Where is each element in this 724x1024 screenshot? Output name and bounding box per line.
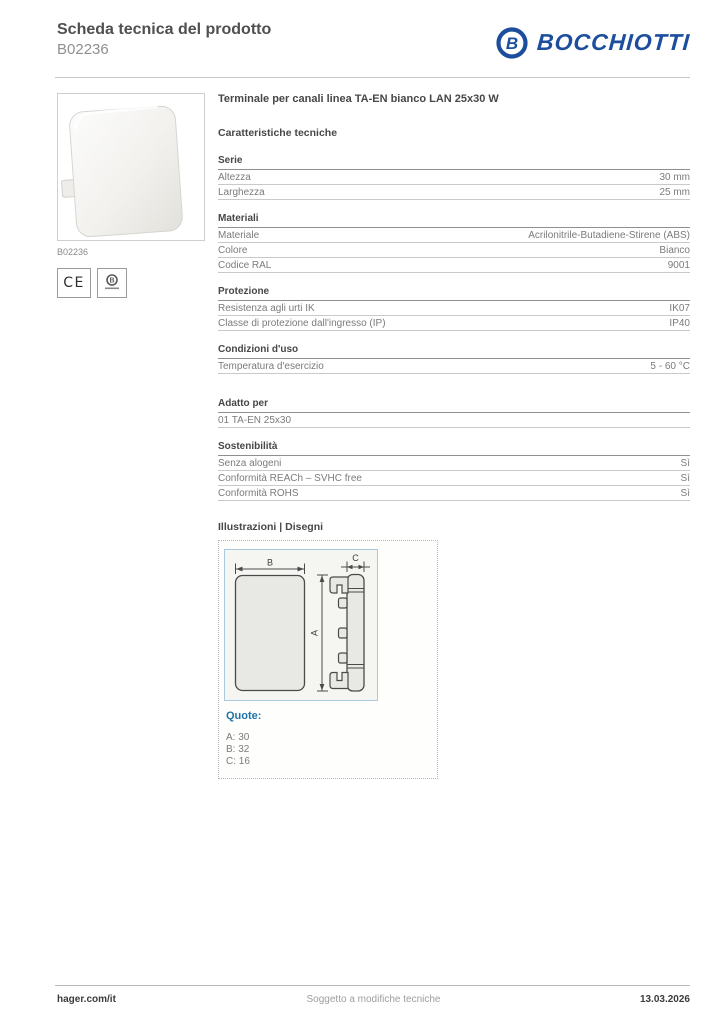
spec-value: Bianco (659, 245, 690, 256)
spec-section: MaterialiMaterialeAcrilonitrile-Butadien… (218, 213, 690, 273)
spec-content: Terminale per canali linea TA-EN bianco … (218, 93, 690, 779)
brand-icon-letter: B (506, 34, 518, 53)
ce-mark-icon: CE (57, 268, 91, 298)
section-title: Protezione (218, 286, 690, 301)
section-title: Serie (218, 155, 690, 170)
spec-row: Senza alogeniSì (218, 456, 690, 471)
spec-label: Conformità ROHS (218, 488, 299, 499)
spec-row: 01 TA-EN 25x30 (218, 413, 690, 428)
spec-value: 5 - 60 °C (650, 361, 690, 372)
spec-value: Sì (681, 458, 690, 469)
spec-row: MaterialeAcrilonitrile-Butadiene-Stirene… (218, 228, 690, 243)
spec-value: Acrilonitrile-Butadiene-Stirene (ABS) (528, 230, 690, 241)
spec-section: Condizioni d'usoTemperatura d'esercizio5… (218, 344, 690, 374)
footer-divider (55, 985, 690, 986)
ce-mark-label: CE (63, 275, 85, 291)
spec-row: ColoreBianco (218, 243, 690, 258)
spec-value: Sì (681, 473, 690, 484)
product-panel: B02236 CE B (57, 93, 205, 298)
section-title: Materiali (218, 213, 690, 228)
section-title: Sostenibilità (218, 441, 690, 456)
footer: hager.com/it Soggetto a modifiche tecnic… (57, 994, 690, 1005)
header-titles: Scheda tecnica del prodotto B02236 (57, 20, 271, 60)
spec-section: SerieAltezza30 mmLarghezza25 mm (218, 155, 690, 200)
section-title: Adatto per (218, 398, 690, 413)
dim-label-a: A (310, 630, 320, 636)
spec-row: Temperatura d'esercizio5 - 60 °C (218, 359, 690, 374)
spec-value: IP40 (669, 318, 690, 329)
footer-disclaimer: Soggetto a modifiche tecniche (57, 994, 690, 1005)
spec-value: 30 mm (659, 172, 690, 183)
quote-item: C: 16 (226, 756, 432, 768)
spec-value: 9001 (668, 260, 690, 271)
spec-label: Senza alogeni (218, 458, 281, 469)
spec-label: Codice RAL (218, 260, 271, 271)
spec-row: Conformità ROHSSì (218, 486, 690, 501)
spec-section: Adatto per01 TA-EN 25x30 (218, 398, 690, 428)
quality-mark-icon: B (97, 268, 127, 298)
spec-label: Larghezza (218, 187, 265, 198)
datasheet-page: Scheda tecnica del prodotto B02236 B BOC… (0, 0, 724, 1024)
page-title: Scheda tecnica del prodotto (57, 20, 271, 40)
product-image-caption: B02236 (57, 247, 205, 257)
header: Scheda tecnica del prodotto B02236 B BOC… (57, 20, 690, 60)
spec-label: Resistenza agli urti IK (218, 303, 315, 314)
dimension-drawing-icon: B A (225, 550, 377, 700)
quote-list: A: 30B: 32C: 16 (226, 732, 432, 768)
header-divider (55, 77, 690, 78)
spec-row: Codice RAL9001 (218, 258, 690, 273)
product-code: B02236 (57, 40, 271, 60)
spec-label: Materiale (218, 230, 259, 241)
characteristics-heading: Caratteristiche tecniche (218, 127, 690, 139)
certification-marks: CE B (57, 268, 205, 298)
quote-item: A: 30 (226, 732, 432, 744)
spec-row: Altezza30 mm (218, 170, 690, 185)
circle-b-icon: B (494, 24, 530, 60)
spec-value: IK07 (669, 303, 690, 314)
quote-heading: Quote: (226, 710, 432, 722)
spec-label: Temperatura d'esercizio (218, 361, 324, 372)
product-title: Terminale per canali linea TA-EN bianco … (218, 93, 690, 106)
svg-text:B: B (109, 278, 114, 285)
dim-label-c: C (352, 553, 359, 563)
circle-b-quality-icon: B (101, 272, 123, 294)
spec-label: Conformità REACh – SVHC free (218, 473, 362, 484)
product-image-frame (57, 93, 205, 241)
spec-label: Colore (218, 245, 247, 256)
brand-logo: B BOCCHIOTTI (494, 24, 690, 60)
spec-value: 25 mm (659, 187, 690, 198)
spec-label: Classe di protezione dall'ingresso (IP) (218, 318, 386, 329)
quote-item: B: 32 (226, 744, 432, 756)
spec-value: Sì (681, 488, 690, 499)
spec-sections: SerieAltezza30 mmLarghezza25 mmMateriali… (218, 155, 690, 501)
spec-row: Larghezza25 mm (218, 185, 690, 200)
dim-label-b: B (267, 558, 273, 568)
spec-label: 01 TA-EN 25x30 (218, 415, 291, 426)
brand-name: BOCCHIOTTI (536, 29, 691, 56)
technical-drawing: B A (224, 549, 378, 701)
spec-section: SostenibilitàSenza alogeniSìConformità R… (218, 441, 690, 501)
illustrations-heading: Illustrazioni | Disegni (218, 521, 690, 533)
spec-section: ProtezioneResistenza agli urti IKIK07Cla… (218, 286, 690, 331)
product-photo-endcap-icon (58, 94, 204, 240)
spec-row: Classe di protezione dall'ingresso (IP)I… (218, 316, 690, 331)
spec-row: Conformità REACh – SVHC freeSì (218, 471, 690, 486)
spec-row: Resistenza agli urti IKIK07 (218, 301, 690, 316)
illustration-panel: B A (218, 540, 438, 779)
spec-label: Altezza (218, 172, 251, 183)
section-title: Condizioni d'uso (218, 344, 690, 359)
